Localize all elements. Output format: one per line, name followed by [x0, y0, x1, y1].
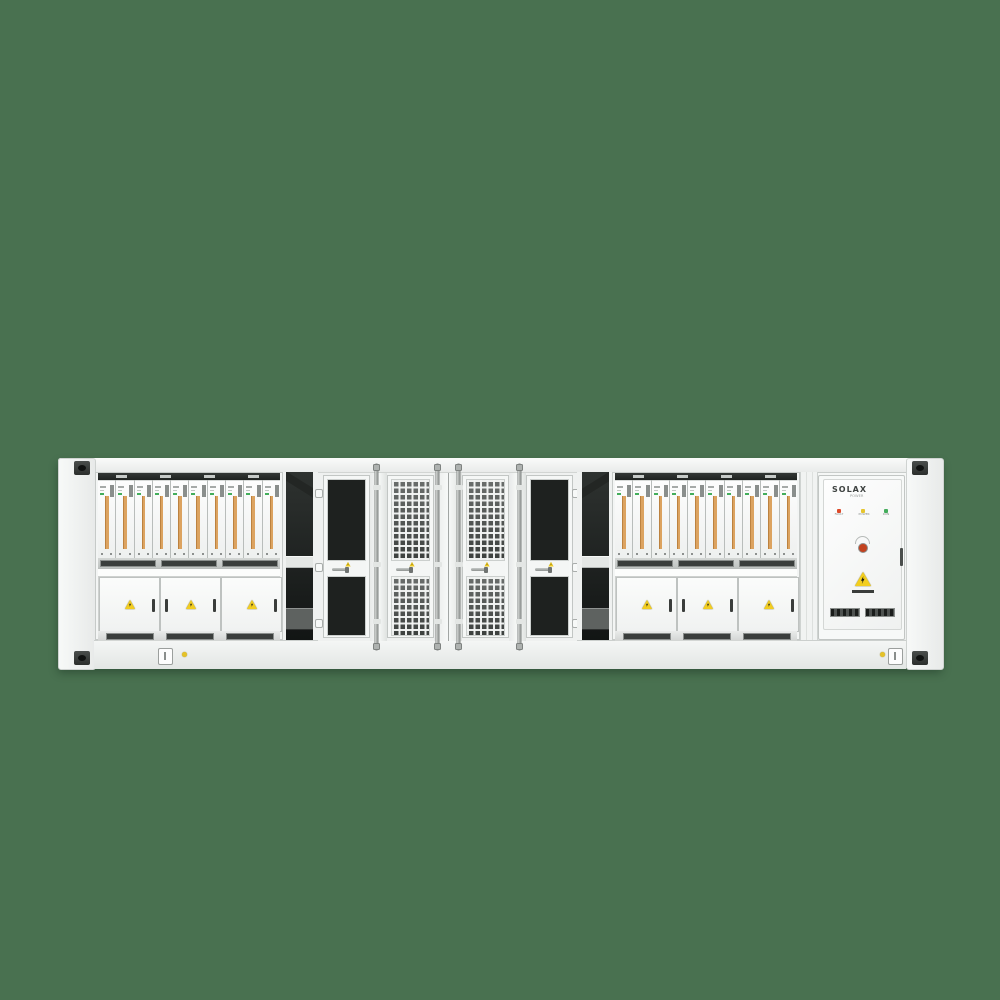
- module-accent-stripe: [787, 496, 791, 549]
- battery-module[interactable]: [171, 480, 188, 558]
- latch-pivot: [345, 567, 349, 573]
- module-accent-stripe: [178, 496, 182, 549]
- module-label: [118, 486, 124, 488]
- rod-keeper: [434, 485, 442, 490]
- vent-hole-icon: [691, 553, 693, 555]
- module-status-led: [137, 493, 141, 495]
- vent-hole-icon: [110, 553, 112, 555]
- vent-hole-icon: [774, 553, 776, 555]
- rod-keeper: [434, 619, 442, 624]
- vent-grille-icon: [830, 608, 860, 617]
- mesh-panel-upper: [530, 479, 569, 561]
- mesh-door[interactable]: [526, 475, 573, 638]
- module-accent-stripe: [160, 496, 164, 549]
- battery-module[interactable]: [208, 480, 225, 558]
- vent-hole-icon: [682, 553, 684, 555]
- module-status-led: [118, 493, 122, 495]
- warning-triangle-icon: [125, 600, 135, 609]
- vent-grille-icon: [226, 633, 274, 640]
- door-locking-rod[interactable]: [457, 464, 460, 650]
- rod-cap: [434, 643, 441, 650]
- door-locking-rod[interactable]: [375, 464, 378, 650]
- door-handle[interactable]: [165, 599, 168, 612]
- module-handle[interactable]: [664, 485, 668, 497]
- module-status-led: [763, 493, 767, 495]
- solax-cabinet-door[interactable]: SOLAXPOWERFAULTPOWERRUN: [823, 479, 902, 630]
- module-label: [246, 490, 250, 492]
- vent-hole-icon: [700, 553, 702, 555]
- cabinet-door[interactable]: [221, 577, 282, 632]
- rod-cap: [373, 464, 380, 471]
- vent-grille-icon: [166, 633, 214, 640]
- door-stile: [370, 473, 387, 641]
- vent-hole-icon: [238, 553, 240, 555]
- mesh-door[interactable]: [323, 475, 370, 638]
- battery-module[interactable]: [670, 480, 687, 558]
- status-led: POWER: [854, 509, 872, 519]
- battery-module[interactable]: [761, 480, 778, 558]
- vent-hole-icon: [138, 553, 140, 555]
- module-handle[interactable]: [774, 485, 778, 497]
- mount-tab: [721, 475, 732, 478]
- warning-caption: [852, 590, 874, 593]
- lightning-bolt-icon: [861, 576, 865, 584]
- module-accent-stripe: [695, 496, 699, 549]
- module-label: [782, 486, 788, 488]
- door-handle[interactable]: [669, 599, 672, 612]
- module-accent-stripe: [659, 496, 663, 549]
- module-status-led: [745, 493, 749, 495]
- scene: PCS Distribution Cabinet PCS Distributio…: [0, 0, 1000, 1000]
- door-handle[interactable]: [791, 599, 794, 612]
- solax-control-cabinet: SOLAXPOWERFAULTPOWERRUN: [818, 475, 905, 640]
- rod-cap: [373, 643, 380, 650]
- frame-gap-left: [283, 472, 318, 640]
- vent-hole-icon: [266, 553, 268, 555]
- battery-rack-left: PCS Distribution Cabinet: [95, 472, 283, 640]
- vent-hole-icon: [746, 553, 748, 555]
- status-led: RUN: [877, 509, 895, 519]
- warning-triangle-icon: [703, 600, 713, 609]
- module-status-led: [782, 493, 786, 495]
- module-label: [246, 486, 252, 488]
- module-status-led: [155, 493, 159, 495]
- module-status-led: [635, 493, 639, 495]
- vent-grille-icon: [739, 560, 795, 567]
- warning-triangle-icon: [485, 562, 490, 567]
- module-label: [617, 490, 621, 492]
- mesh-panel-upper: [391, 479, 430, 561]
- battery-module[interactable]: [153, 480, 170, 558]
- warning-triangle-icon: [549, 562, 554, 567]
- corner-post-left: [58, 458, 96, 670]
- mesh-door[interactable]: [387, 475, 434, 638]
- cross-beam: [577, 556, 612, 568]
- hinge-icon: [315, 619, 323, 628]
- vent-hole-icon: [202, 553, 204, 555]
- module-label: [763, 490, 767, 492]
- rack-vent-rail: [615, 558, 797, 568]
- module-handle[interactable]: [755, 485, 759, 497]
- battery-module[interactable]: [116, 480, 133, 558]
- module-status-led: [191, 493, 195, 495]
- module-accent-stripe: [677, 496, 681, 549]
- cabinet-door[interactable]: [160, 577, 221, 632]
- module-handle[interactable]: [682, 485, 686, 497]
- rod-cap: [516, 464, 523, 471]
- battery-module[interactable]: [615, 480, 632, 558]
- vent-hole-icon: [165, 553, 167, 555]
- led-label: FAULT: [835, 513, 844, 516]
- vent-grille-icon: [100, 560, 156, 567]
- module-label: [118, 490, 122, 492]
- module-handle[interactable]: [202, 485, 206, 497]
- vent-grille-icon: [617, 560, 673, 567]
- lightning-bolt-icon: [707, 603, 709, 608]
- module-accent-stripe: [196, 496, 200, 549]
- cabinet-door[interactable]: [99, 577, 160, 632]
- rod-keeper: [455, 619, 463, 624]
- battery-module[interactable]: [743, 480, 760, 558]
- module-label: [672, 490, 676, 492]
- module-label: [635, 490, 639, 492]
- door-mid-band: [530, 561, 569, 576]
- vent-hole-icon: [636, 553, 638, 555]
- brand-logo-sub: POWER: [850, 494, 863, 498]
- vent-hole-icon: [183, 553, 185, 555]
- module-handle[interactable]: [737, 485, 741, 497]
- vent-grille-icon: [865, 608, 895, 617]
- frame-gap-right: [577, 472, 612, 640]
- rod-keeper: [516, 562, 524, 567]
- module-accent-stripe: [123, 496, 127, 549]
- corner-casting-icon: [912, 461, 928, 475]
- high-voltage-triangle-icon: [855, 572, 871, 586]
- module-label: [654, 486, 660, 488]
- vent-hole-icon: [764, 553, 766, 555]
- vent-hole-icon: [792, 553, 794, 555]
- module-handle[interactable]: [220, 485, 224, 497]
- lightning-bolt-icon: [768, 603, 770, 608]
- warning-triangle-icon: [186, 600, 196, 609]
- vent-hole-icon: [129, 553, 131, 555]
- module-accent-stripe: [270, 496, 274, 549]
- module-accent-stripe: [732, 496, 736, 549]
- module-label: [654, 490, 658, 492]
- cabinet-door[interactable]: [738, 577, 799, 632]
- cable-duct: [582, 608, 612, 630]
- module-status-led: [727, 493, 731, 495]
- cabinet-door[interactable]: [616, 577, 677, 632]
- latch-pivot: [484, 567, 488, 573]
- mount-tab: [765, 475, 776, 478]
- module-label: [137, 486, 143, 488]
- vent-grille-icon: [106, 633, 154, 640]
- rod-keeper: [434, 562, 442, 567]
- door-handle[interactable]: [152, 599, 155, 612]
- rod-keeper: [373, 485, 381, 490]
- lightning-bolt-icon: [412, 563, 413, 565]
- vent-grille-icon: [678, 560, 734, 567]
- rod-cap: [455, 643, 462, 650]
- vent-hole-icon: [275, 553, 277, 555]
- battery-module[interactable]: [263, 480, 280, 558]
- vent-hole-icon: [755, 553, 757, 555]
- vent-hole-icon: [247, 553, 249, 555]
- battery-module[interactable]: [652, 480, 669, 558]
- rod-keeper: [373, 619, 381, 624]
- vent-hole-icon: [737, 553, 739, 555]
- module-handle[interactable]: [238, 485, 242, 497]
- module-handle[interactable]: [627, 485, 631, 497]
- module-label: [708, 490, 712, 492]
- mount-tab: [248, 475, 259, 478]
- mount-tab: [633, 475, 644, 478]
- lightning-bolt-icon: [487, 563, 488, 565]
- module-handle[interactable]: [129, 485, 133, 497]
- module-label: [210, 490, 214, 492]
- vent-hole-icon: [211, 553, 213, 555]
- module-accent-stripe: [105, 496, 109, 549]
- module-label: [635, 486, 641, 488]
- mesh-panel-lower: [466, 576, 505, 636]
- battery-module[interactable]: [688, 480, 705, 558]
- door-handle[interactable]: [274, 599, 277, 612]
- door-mid-band: [466, 561, 505, 576]
- module-accent-stripe: [713, 496, 717, 549]
- door-locking-rod[interactable]: [518, 464, 521, 650]
- battery-module[interactable]: [226, 480, 243, 558]
- battery-module-row: [615, 480, 797, 558]
- module-label: [173, 486, 179, 488]
- battery-module-row: [98, 480, 280, 558]
- battery-module[interactable]: [189, 480, 206, 558]
- module-label: [100, 490, 104, 492]
- hinge-icon: [315, 563, 323, 572]
- rod-cap: [434, 464, 441, 471]
- lightning-bolt-icon: [348, 563, 349, 565]
- module-handle[interactable]: [165, 485, 169, 497]
- cable-duct: [283, 608, 313, 630]
- vent-hole-icon: [709, 553, 711, 555]
- rod-cap: [455, 464, 462, 471]
- lightning-bolt-icon: [251, 603, 253, 608]
- indicator-dot: [182, 652, 187, 657]
- rack-top-plenum: [615, 473, 797, 480]
- module-handle[interactable]: [183, 485, 187, 497]
- vent-grille-icon: [743, 633, 791, 640]
- door-handle[interactable]: [730, 599, 733, 612]
- module-label: [137, 490, 141, 492]
- module-label: [100, 486, 106, 488]
- module-handle[interactable]: [110, 485, 114, 497]
- module-label: [265, 490, 269, 492]
- frame-post: [800, 472, 818, 640]
- battery-module[interactable]: [706, 480, 723, 558]
- status-led: FAULT: [830, 509, 848, 519]
- mount-tab: [160, 475, 171, 478]
- led-label: RUN: [882, 513, 891, 516]
- mesh-panel-lower: [391, 576, 430, 636]
- door-locking-rod[interactable]: [436, 464, 439, 650]
- rod-keeper: [516, 619, 524, 624]
- mount-tab: [677, 475, 688, 478]
- center-seam: [448, 473, 449, 641]
- vent-hole-icon: [220, 553, 222, 555]
- module-handle[interactable]: [257, 485, 261, 497]
- mount-tab: [116, 475, 127, 478]
- module-handle[interactable]: [719, 485, 723, 497]
- module-accent-stripe: [750, 496, 754, 549]
- rod-cap: [516, 643, 523, 650]
- rack-vent-rail: [98, 558, 280, 568]
- module-label: [228, 490, 232, 492]
- module-label: [228, 486, 234, 488]
- vent-hole-icon: [664, 553, 666, 555]
- frame-edge: [283, 472, 286, 640]
- door-handle[interactable]: [682, 599, 685, 612]
- vent-hole-icon: [147, 553, 149, 555]
- battery-module[interactable]: [98, 480, 115, 558]
- module-label: [727, 486, 733, 488]
- vent-hole-icon: [229, 553, 231, 555]
- hinge-icon: [315, 489, 323, 498]
- module-status-led: [210, 493, 214, 495]
- module-label: [617, 486, 623, 488]
- battery-module[interactable]: [725, 480, 742, 558]
- module-label: [173, 490, 177, 492]
- mesh-panel-lower: [530, 576, 569, 636]
- vent-hole-icon: [257, 553, 259, 555]
- corner-casting-icon: [74, 461, 90, 475]
- module-handle[interactable]: [275, 485, 279, 497]
- module-status-led: [690, 493, 694, 495]
- module-accent-stripe: [251, 496, 255, 549]
- led-label: POWER: [858, 513, 867, 516]
- mount-tab: [204, 475, 215, 478]
- diagonal-brace: [577, 472, 612, 502]
- module-status-led: [708, 493, 712, 495]
- module-label: [155, 490, 159, 492]
- indicator-led-row: FAULTPOWERRUN: [830, 509, 895, 519]
- module-status-led: [654, 493, 658, 495]
- module-accent-stripe: [215, 496, 219, 549]
- vent-hole-icon: [119, 553, 121, 555]
- indicator-dot: [880, 652, 885, 657]
- mesh-door[interactable]: [462, 475, 509, 638]
- module-handle[interactable]: [147, 485, 151, 497]
- module-label: [782, 490, 786, 492]
- vent-hole-icon: [156, 553, 158, 555]
- cabinet-door[interactable]: [677, 577, 738, 632]
- module-label: [745, 490, 749, 492]
- service-switch-left[interactable]: [158, 648, 173, 665]
- distribution-cabinet: [98, 576, 280, 633]
- vent-hole-icon: [174, 553, 176, 555]
- rod-keeper: [455, 485, 463, 490]
- lightning-bolt-icon: [646, 603, 648, 608]
- corner-post-right: [906, 458, 944, 670]
- module-status-led: [246, 493, 250, 495]
- container-bottom-rail: [94, 640, 906, 669]
- vent-hole-icon: [618, 553, 620, 555]
- vent-hole-icon: [728, 553, 730, 555]
- module-status-led: [617, 493, 621, 495]
- module-accent-stripe: [233, 496, 237, 549]
- warning-triangle-icon: [247, 600, 257, 609]
- module-label: [155, 486, 161, 488]
- module-label: [265, 486, 271, 488]
- rod-keeper: [373, 562, 381, 567]
- mesh-panel-upper: [327, 479, 366, 561]
- vent-hole-icon: [192, 553, 194, 555]
- module-label: [191, 486, 197, 488]
- corner-casting-icon: [74, 651, 90, 665]
- latch-pivot: [409, 567, 413, 573]
- battery-module[interactable]: [244, 480, 261, 558]
- battery-rack-right: PCS Distribution Cabinet: [612, 472, 800, 640]
- module-handle[interactable]: [792, 485, 796, 497]
- vent-hole-icon: [783, 553, 785, 555]
- distribution-cabinet: [615, 576, 797, 633]
- rack-top-plenum: [98, 473, 280, 480]
- lightning-bolt-icon: [190, 603, 192, 608]
- vent-grille-icon: [683, 633, 731, 640]
- vent-hole-icon: [627, 553, 629, 555]
- lightning-bolt-icon: [129, 603, 131, 608]
- mesh-panel-lower: [327, 576, 366, 636]
- brand-logo: SOLAX: [832, 485, 867, 494]
- module-handle[interactable]: [646, 485, 650, 497]
- module-accent-stripe: [640, 496, 644, 549]
- battery-module[interactable]: [780, 480, 797, 558]
- module-status-led: [672, 493, 676, 495]
- warning-triangle-icon: [764, 600, 774, 609]
- module-label: [745, 486, 751, 488]
- module-label: [690, 490, 694, 492]
- module-status-led: [265, 493, 269, 495]
- warning-triangle-icon: [346, 562, 351, 567]
- rack-base: [98, 631, 280, 641]
- rod-keeper: [455, 562, 463, 567]
- battery-module[interactable]: [633, 480, 650, 558]
- module-label: [727, 490, 731, 492]
- door-handle[interactable]: [900, 548, 903, 566]
- warning-triangle-icon: [410, 562, 415, 567]
- door-mid-band: [391, 561, 430, 576]
- vent-grille-icon: [623, 633, 671, 640]
- module-handle[interactable]: [700, 485, 704, 497]
- vent-hole-icon: [101, 553, 103, 555]
- vent-hole-icon: [719, 553, 721, 555]
- module-label: [191, 490, 195, 492]
- service-switch-right[interactable]: [888, 648, 903, 665]
- module-label: [210, 486, 216, 488]
- latch-pivot: [548, 567, 552, 573]
- module-accent-stripe: [142, 496, 146, 549]
- module-status-led: [100, 493, 104, 495]
- vent-hole-icon: [646, 553, 648, 555]
- battery-module[interactable]: [135, 480, 152, 558]
- mesh-panel-upper: [466, 479, 505, 561]
- rod-keeper: [516, 485, 524, 490]
- mesh-door-bay: [318, 472, 577, 641]
- door-handle[interactable]: [213, 599, 216, 612]
- vent-hole-icon: [655, 553, 657, 555]
- module-accent-stripe: [622, 496, 626, 549]
- storage-container: PCS Distribution Cabinet PCS Distributio…: [58, 458, 942, 668]
- emergency-stop-button[interactable]: [858, 543, 868, 553]
